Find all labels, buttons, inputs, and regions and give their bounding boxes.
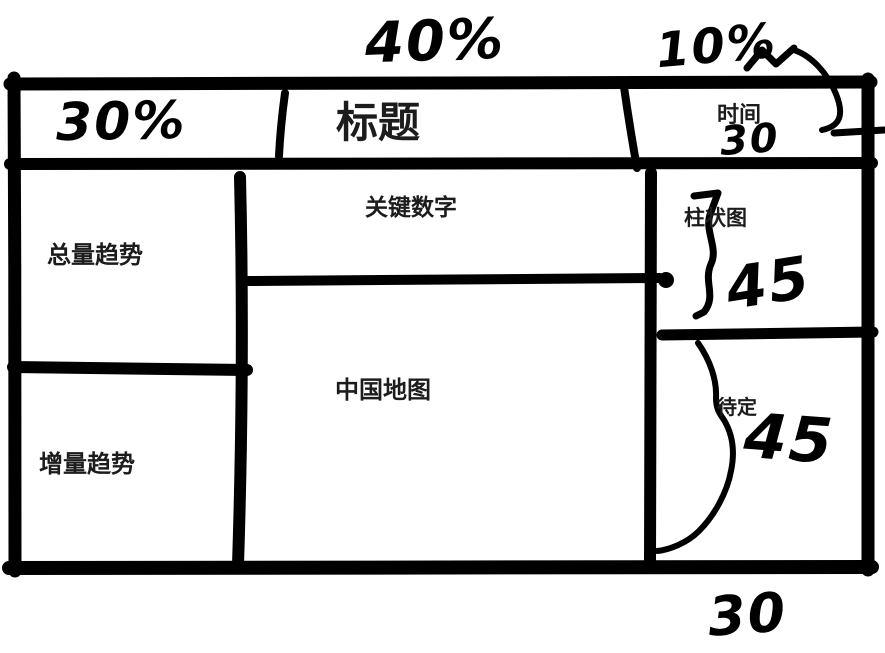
pending-squiggle	[657, 343, 733, 551]
frame-top-line	[10, 82, 871, 84]
frame-bottom-line	[9, 567, 872, 568]
pending-height-note: 45	[742, 405, 836, 473]
header-divider-left	[279, 93, 285, 156]
bar-chart-height-note: 45	[722, 248, 815, 319]
frame-left-line	[14, 78, 15, 571]
wireframe-sketch: 40% 10% 30% 标题 时间 30 总量趋势 增量趋势 关键数字 中国地图…	[0, 0, 885, 653]
width-note-left: 30%	[56, 95, 187, 149]
bar-chart-panel-label: 柱状图	[684, 208, 747, 229]
key-numbers-panel-label: 关键数字	[365, 197, 457, 220]
left-row-divider	[13, 367, 247, 370]
key-numbers-divider-end-blob	[658, 272, 674, 288]
header-divider-right	[624, 87, 637, 168]
right-column-divider	[650, 173, 651, 564]
arrow-curve	[794, 50, 840, 130]
bottom-height-note: 30	[706, 585, 789, 644]
arrow-dash	[834, 130, 884, 133]
width-note-right: 10%	[654, 17, 779, 75]
title-panel-label: 标题	[336, 102, 420, 144]
china-map-panel-label: 中国地图	[335, 378, 431, 402]
right-row-divider	[662, 332, 873, 335]
key-numbers-divider	[248, 278, 660, 281]
incremental-trend-panel-label: 增量趋势	[39, 452, 135, 476]
width-note-center: 40%	[364, 12, 506, 73]
total-trend-panel-label: 总量趋势	[47, 243, 143, 267]
time-height-note: 30	[719, 118, 781, 162]
